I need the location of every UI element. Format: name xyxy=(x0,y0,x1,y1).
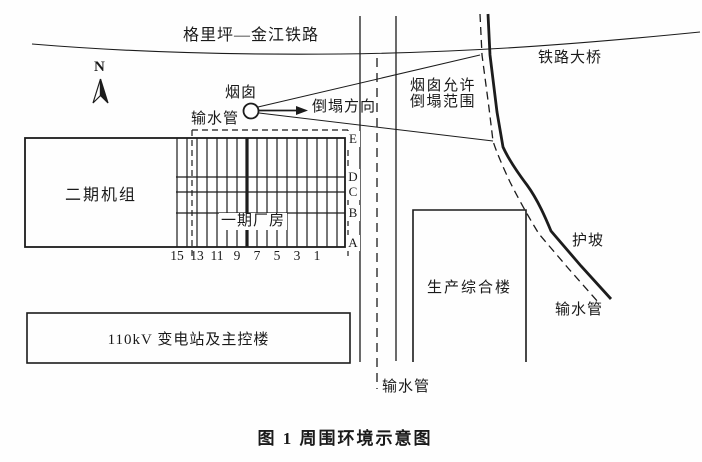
grid-col-label-5: 5 xyxy=(266,248,288,264)
plant-grid-rows xyxy=(176,177,345,213)
grid-col-label-1: 1 xyxy=(306,248,328,264)
chimney-symbol xyxy=(244,104,259,119)
collapse-zone-label: 烟囱允许 倒塌范围 xyxy=(410,78,476,110)
phase2-units-label: 二期机组 xyxy=(25,138,177,247)
slope-protection-label: 护坡 xyxy=(572,233,604,250)
grid-col-label-7: 7 xyxy=(246,248,268,264)
water-pipe-bottom-label: 输水管 xyxy=(382,379,430,396)
collapse-direction-arrow-head xyxy=(296,106,308,115)
phase1-plant-label: 一期厂房 xyxy=(219,213,287,230)
water-pipe-around-plant xyxy=(192,130,348,258)
substation-label: 110kV 变电站及主控楼 xyxy=(27,313,350,363)
figure-caption: 图 1 周围环境示意图 xyxy=(0,424,690,449)
grid-col-label-3: 3 xyxy=(286,248,308,264)
grid-col-label-15: 15 xyxy=(166,248,188,264)
grid-col-label-11: 11 xyxy=(206,248,228,264)
grid-row-label-D: D xyxy=(346,169,360,185)
railway-bridge-label: 铁路大桥 xyxy=(538,50,602,67)
grid-col-label-13: 13 xyxy=(186,248,208,264)
grid-row-label-B: B xyxy=(346,205,360,221)
production-building-label: 生产综合楼 xyxy=(413,210,526,362)
grid-col-label-9: 9 xyxy=(226,248,248,264)
grid-row-label-C: C xyxy=(346,184,360,200)
railway-label: 格里坪—金江铁路 xyxy=(183,27,319,45)
chimney-label: 烟囱 xyxy=(225,85,257,102)
grid-row-label-E: E xyxy=(346,131,360,147)
site-plan-figure: 格里坪—金江铁路 铁路大桥 N 烟囱 输水管 倒塌方向 烟囱允许 倒塌范围 二期… xyxy=(0,0,702,462)
grid-row-label-A: A xyxy=(346,235,360,251)
collapse-direction-label: 倒塌方向 xyxy=(312,99,376,116)
water-pipe-top-label: 输水管 xyxy=(191,111,239,128)
water-pipe-right-label: 输水管 xyxy=(555,302,603,319)
collapse-wedge-lower-line xyxy=(259,113,493,141)
north-arrow-icon xyxy=(93,79,108,103)
north-label: N xyxy=(94,59,105,76)
